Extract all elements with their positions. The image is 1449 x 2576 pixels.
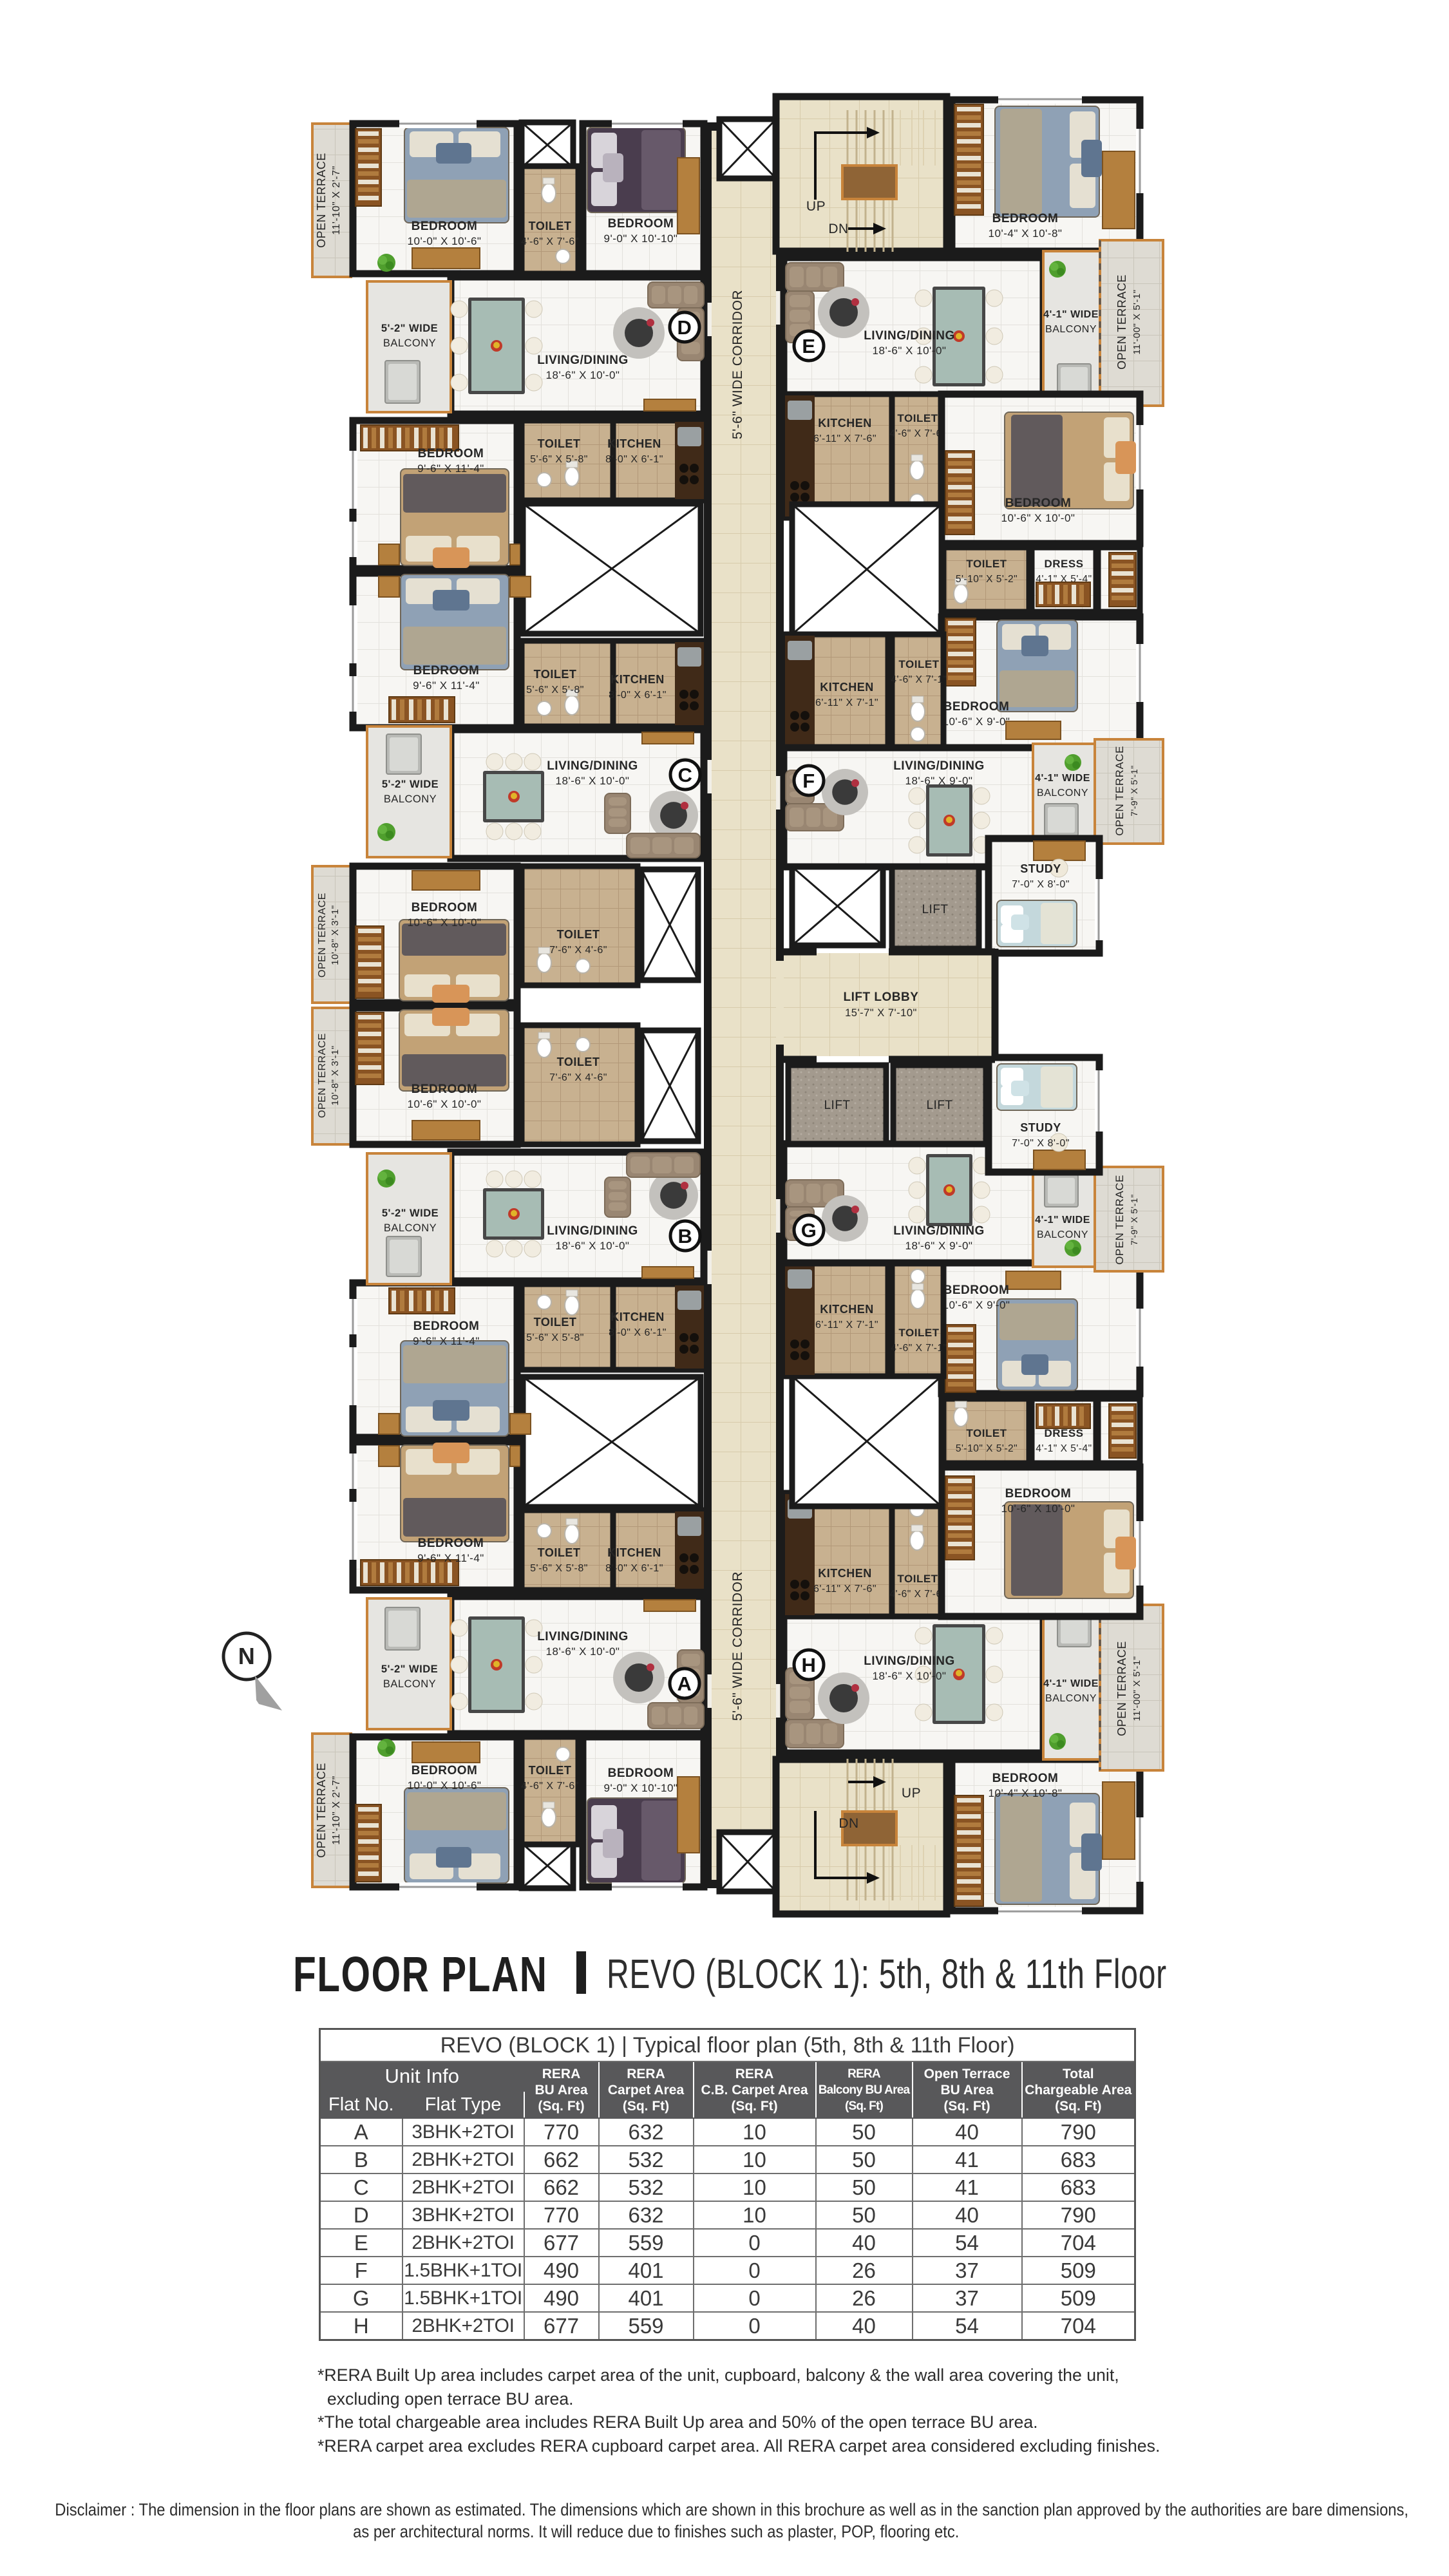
svg-text:10'-6" X 10'-0": 10'-6" X 10'-0" [408,916,482,929]
svg-text:BEDROOM: BEDROOM [943,1283,1010,1297]
svg-text:18'-6" X 10'-0": 18'-6" X 10'-0" [873,1670,947,1682]
svg-text:BEDROOM: BEDROOM [1005,497,1072,510]
svg-text:BEDROOM: BEDROOM [412,901,478,914]
svg-text:BEDROOM: BEDROOM [1005,1487,1072,1501]
svg-text:5'-10" X 5'-2": 5'-10" X 5'-2" [956,1443,1018,1454]
svg-text:8'-0" X 6'-1": 8'-0" X 6'-1" [609,1327,667,1338]
svg-text:OPEN TERRACE: OPEN TERRACE [317,893,328,978]
svg-text:18'-6" X 10'-0": 18'-6" X 10'-0" [546,369,620,381]
svg-text:BEDROOM: BEDROOM [412,1083,478,1096]
svg-text:BEDROOM: BEDROOM [413,664,480,677]
svg-text:OPEN TERRACE: OPEN TERRACE [1113,746,1126,836]
svg-text:7'-6" X 4'-6": 7'-6" X 4'-6" [549,945,607,956]
svg-text:TOILET: TOILET [966,1427,1007,1439]
svg-text:LIFT: LIFT [926,1099,952,1112]
svg-text:6'-11" X 7'-6": 6'-11" X 7'-6" [813,433,876,444]
svg-text:BEDROOM: BEDROOM [412,1764,478,1777]
svg-text:18'-6" X 10'-0": 18'-6" X 10'-0" [873,345,947,357]
svg-text:LIVING/DINING: LIVING/DINING [547,1224,638,1238]
svg-text:10'-4" X 10'-8": 10'-4" X 10'-8" [989,1787,1063,1799]
svg-text:15'-7" X 7'-10": 15'-7" X 7'-10" [845,1007,917,1019]
svg-text:5'-2" WIDE: 5'-2" WIDE [382,779,439,790]
svg-text:10'-6" X 9'-0": 10'-6" X 9'-0" [943,1299,1010,1311]
svg-text:10'-6" X 10'-0": 10'-6" X 10'-0" [1001,512,1075,524]
svg-text:BALCONY: BALCONY [383,1678,436,1690]
svg-text:LIFT: LIFT [824,1099,850,1112]
svg-text:8'-0" X 6'-1": 8'-0" X 6'-1" [605,1563,663,1574]
svg-text:KITCHEN: KITCHEN [818,417,872,430]
svg-text:18'-6" X 9'-0": 18'-6" X 9'-0" [905,1240,973,1252]
svg-text:BEDROOM: BEDROOM [992,212,1059,225]
svg-text:10'-0" X 10'-6": 10'-0" X 10'-6" [408,235,482,247]
svg-text:9'-6" X 11'-4": 9'-6" X 11'-4" [413,679,480,692]
svg-text:4'-1" WIDE: 4'-1" WIDE [1035,773,1090,784]
svg-text:BEDROOM: BEDROOM [608,217,674,231]
svg-text:7'-0" X 8'-0": 7'-0" X 8'-0" [1012,1138,1070,1149]
svg-text:LIVING/DINING: LIVING/DINING [893,1224,985,1238]
svg-text:BEDROOM: BEDROOM [418,447,484,460]
svg-text:9'-6" X 11'-4": 9'-6" X 11'-4" [417,462,484,475]
svg-text:LIVING/DINING: LIVING/DINING [864,1654,955,1668]
svg-text:UP: UP [902,1786,921,1801]
svg-text:BEDROOM: BEDROOM [412,220,478,233]
svg-text:D: D [677,316,692,339]
svg-text:18'-6" X 10'-0": 18'-6" X 10'-0" [546,1645,620,1658]
svg-text:8'-0" X 6'-1": 8'-0" X 6'-1" [609,690,667,701]
svg-text:TOILET: TOILET [538,1546,581,1559]
svg-text:LIFT: LIFT [922,903,948,916]
svg-text:LIVING/DINING: LIVING/DINING [537,1630,629,1643]
svg-text:LIFT LOBBY: LIFT LOBBY [844,990,919,1004]
svg-text:4'-6" X 7'-6": 4'-6" X 7'-6" [889,428,945,439]
svg-text:TOILET: TOILET [529,220,572,232]
svg-text:KITCHEN: KITCHEN [607,1546,661,1559]
svg-text:TOILET: TOILET [557,1056,600,1068]
svg-text:5'-6" X 5'-8": 5'-6" X 5'-8" [530,1563,588,1574]
svg-text:H: H [802,1654,817,1676]
svg-text:KITCHEN: KITCHEN [820,1303,874,1316]
svg-text:TOILET: TOILET [538,437,581,450]
svg-text:OPEN TERRACE: OPEN TERRACE [317,1033,328,1118]
svg-text:OPEN TERRACE: OPEN TERRACE [1115,1641,1128,1736]
svg-text:UP: UP [806,199,826,214]
svg-text:4'-6" X 7'-6": 4'-6" X 7'-6" [521,1781,579,1792]
svg-text:BALCONY: BALCONY [1037,1229,1088,1240]
svg-text:BALCONY: BALCONY [383,337,436,349]
svg-text:18'-6" X 10'-0": 18'-6" X 10'-0" [556,1240,630,1252]
svg-text:11'-00" X 5'-1": 11'-00" X 5'-1" [1132,1656,1142,1721]
svg-text:18'-6" X 10'-0": 18'-6" X 10'-0" [556,775,630,787]
svg-text:5'-2" WIDE: 5'-2" WIDE [382,1207,439,1219]
svg-text:6'-11" X 7'-1": 6'-11" X 7'-1" [815,697,878,708]
svg-text:4'-1" WIDE: 4'-1" WIDE [1035,1215,1090,1226]
svg-text:11'-00" X 5'-1": 11'-00" X 5'-1" [1132,289,1142,354]
svg-text:7'-6" X 4'-6": 7'-6" X 4'-6" [549,1072,607,1083]
svg-text:BEDROOM: BEDROOM [608,1766,674,1780]
svg-text:BEDROOM: BEDROOM [943,700,1010,714]
svg-text:LIVING/DINING: LIVING/DINING [547,759,638,773]
svg-text:4'-1" WIDE: 4'-1" WIDE [1043,1678,1099,1689]
svg-text:7'-0" X 8'-0": 7'-0" X 8'-0" [1012,879,1070,890]
svg-text:5'-10" X 5'-2": 5'-10" X 5'-2" [956,574,1018,585]
svg-text:4'-1" WIDE: 4'-1" WIDE [1043,309,1099,320]
svg-text:LIVING/DINING: LIVING/DINING [537,354,629,367]
svg-text:4'-6" X 7'-1": 4'-6" X 7'-1" [891,1343,947,1354]
svg-text:STUDY: STUDY [1020,1121,1061,1134]
svg-text:LIVING/DINING: LIVING/DINING [864,329,955,343]
svg-text:4'-6" X 7'-6": 4'-6" X 7'-6" [889,1589,945,1600]
svg-text:5'-6" X 5'-8": 5'-6" X 5'-8" [526,685,584,696]
svg-text:BALCONY: BALCONY [1045,324,1097,335]
svg-text:N: N [238,1643,256,1669]
svg-text:5'-6" WIDE CORRIDOR: 5'-6" WIDE CORRIDOR [730,1571,745,1721]
svg-text:11'-10" X 2'-7": 11'-10" X 2'-7" [331,1776,342,1844]
svg-text:TOILET: TOILET [529,1764,572,1777]
svg-text:BEDROOM: BEDROOM [992,1772,1059,1785]
svg-text:8'-0" X 6'-1": 8'-0" X 6'-1" [605,454,663,465]
svg-text:TOILET: TOILET [534,1316,577,1329]
svg-text:KITCHEN: KITCHEN [611,673,665,686]
svg-text:KITCHEN: KITCHEN [607,437,661,450]
svg-text:5'-6" X 5'-8": 5'-6" X 5'-8" [526,1332,584,1343]
svg-text:DRESS: DRESS [1044,558,1083,570]
svg-text:OPEN TERRACE: OPEN TERRACE [315,153,328,248]
svg-text:F: F [802,770,815,792]
svg-text:OPEN TERRACE: OPEN TERRACE [315,1763,328,1858]
svg-text:10'-8" X 3'-1": 10'-8" X 3'-1" [330,905,341,965]
svg-text:6'-11" X 7'-1": 6'-11" X 7'-1" [815,1320,878,1331]
svg-text:LIVING/DINING: LIVING/DINING [893,759,985,773]
svg-text:G: G [801,1219,817,1242]
svg-text:B: B [678,1225,693,1247]
svg-text:KITCHEN: KITCHEN [820,681,874,694]
svg-text:7'-9" X 5'-1": 7'-9" X 5'-1" [1129,765,1139,816]
svg-text:18'-6" X 9'-0": 18'-6" X 9'-0" [905,775,973,787]
svg-text:DN: DN [828,222,848,236]
svg-text:BEDROOM: BEDROOM [413,1320,480,1333]
svg-text:OPEN TERRACE: OPEN TERRACE [1113,1175,1126,1265]
svg-text:TOILET: TOILET [897,1573,938,1585]
svg-text:OPEN TERRACE: OPEN TERRACE [1115,274,1128,370]
svg-text:4'-6" X 7'-6": 4'-6" X 7'-6" [521,236,579,247]
svg-text:TOILET: TOILET [898,658,939,670]
svg-text:TOILET: TOILET [898,1327,939,1339]
svg-text:7'-9" X 5'-1": 7'-9" X 5'-1" [1129,1194,1139,1245]
svg-text:E: E [802,335,815,357]
svg-text:4'-1" X 5'-4": 4'-1" X 5'-4" [1036,1443,1092,1454]
svg-text:10'-6" X 10'-0": 10'-6" X 10'-0" [1001,1502,1075,1515]
svg-text:BALCONY: BALCONY [384,793,437,805]
svg-text:TOILET: TOILET [534,668,577,681]
svg-text:5'-6" X 5'-8": 5'-6" X 5'-8" [530,454,588,465]
svg-text:10'-6" X 10'-0": 10'-6" X 10'-0" [408,1098,482,1110]
svg-text:9'-6" X 11'-4": 9'-6" X 11'-4" [413,1335,480,1347]
svg-text:10'-6" X 9'-0": 10'-6" X 9'-0" [943,715,1010,728]
svg-text:TOILET: TOILET [557,928,600,941]
svg-text:5'-2" WIDE: 5'-2" WIDE [381,1663,438,1675]
svg-text:9'-0" X 10'-10": 9'-0" X 10'-10" [604,232,678,245]
svg-text:6'-11" X 7'-6": 6'-11" X 7'-6" [813,1584,876,1595]
svg-text:9'-6" X 11'-4": 9'-6" X 11'-4" [417,1552,484,1564]
svg-text:10'-4" X 10'-8": 10'-4" X 10'-8" [989,227,1063,240]
svg-text:TOILET: TOILET [897,412,938,424]
svg-text:10'-0" X 10'-6": 10'-0" X 10'-6" [408,1779,482,1792]
svg-text:5'-2" WIDE: 5'-2" WIDE [381,323,438,334]
svg-text:BEDROOM: BEDROOM [418,1537,484,1550]
svg-text:TOILET: TOILET [966,558,1007,570]
svg-text:BALCONY: BALCONY [1037,788,1088,799]
svg-text:BALCONY: BALCONY [384,1222,437,1234]
svg-text:9'-0" X 10'-10": 9'-0" X 10'-10" [604,1782,678,1794]
svg-text:DN: DN [838,1816,858,1831]
svg-text:10'-8" X 3'-1": 10'-8" X 3'-1" [330,1045,341,1105]
svg-text:KITCHEN: KITCHEN [611,1311,665,1323]
svg-text:C: C [678,764,693,786]
svg-text:BALCONY: BALCONY [1045,1693,1097,1704]
svg-text:KITCHEN: KITCHEN [818,1567,872,1580]
svg-text:11'-10" X 2'-7": 11'-10" X 2'-7" [331,166,342,234]
svg-text:4'-6" X 7'-1": 4'-6" X 7'-1" [891,674,947,685]
svg-text:5'-6" WIDE CORRIDOR: 5'-6" WIDE CORRIDOR [730,290,745,439]
svg-text:STUDY: STUDY [1020,862,1061,875]
svg-text:A: A [677,1672,692,1695]
